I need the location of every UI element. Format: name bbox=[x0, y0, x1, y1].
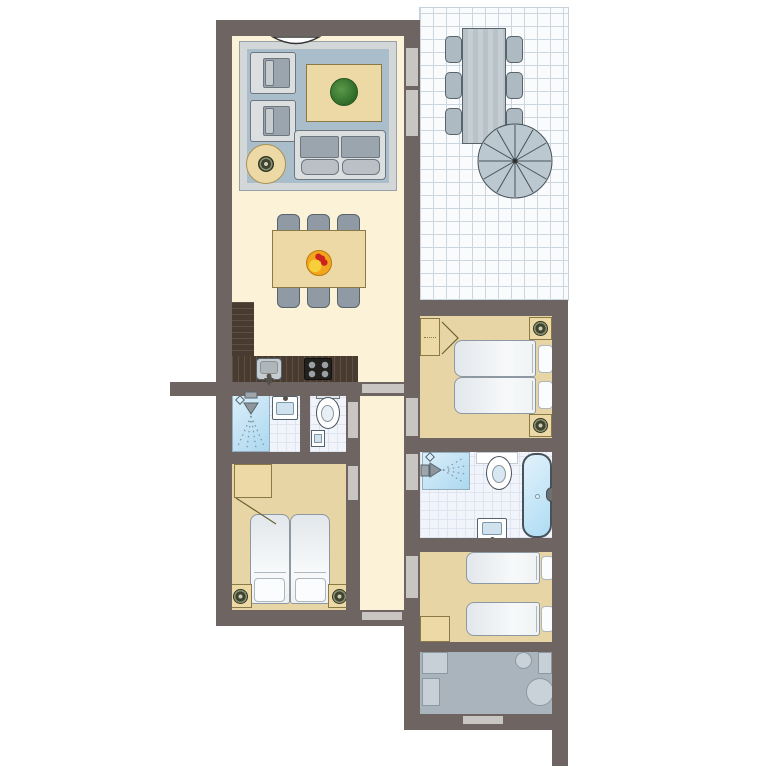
wall bbox=[420, 300, 568, 316]
bedroom-2-door-opening bbox=[348, 466, 358, 500]
wall bbox=[420, 438, 552, 452]
pillow bbox=[295, 578, 326, 602]
wall-stub bbox=[170, 382, 216, 396]
armchair bbox=[250, 100, 296, 142]
bedside-lamp bbox=[233, 589, 248, 604]
terrace-door-opening bbox=[406, 48, 418, 86]
bath-shower bbox=[422, 452, 470, 490]
bathroom-door-opening bbox=[406, 454, 418, 490]
bed-mattress bbox=[466, 602, 540, 636]
bedside-lamp bbox=[533, 418, 548, 433]
wardrobe bbox=[234, 464, 272, 498]
bedroom-1-door-opening bbox=[406, 398, 418, 436]
bedside-lamp bbox=[332, 589, 347, 604]
utility-appliance bbox=[422, 678, 440, 706]
wall bbox=[420, 642, 552, 652]
plant bbox=[330, 78, 358, 106]
toilet bbox=[316, 397, 340, 429]
terrace-door-opening bbox=[406, 90, 418, 136]
floor-plan bbox=[0, 0, 768, 768]
outdoor-chair bbox=[445, 72, 462, 99]
utility-door-opening bbox=[463, 716, 503, 724]
outdoor-chair bbox=[445, 36, 462, 63]
toilet-door-opening bbox=[348, 402, 358, 438]
washing-machine-drum bbox=[515, 652, 532, 669]
outdoor-chair bbox=[506, 36, 523, 63]
wall bbox=[232, 452, 346, 464]
wall bbox=[420, 538, 552, 552]
fruit-bowl bbox=[306, 250, 332, 276]
bed-mattress bbox=[466, 552, 540, 584]
sofa bbox=[294, 130, 386, 180]
washbasin bbox=[272, 396, 298, 420]
pillow bbox=[538, 381, 553, 409]
outdoor-chair bbox=[506, 72, 523, 99]
kitchen-sink bbox=[256, 358, 282, 380]
toilet bbox=[486, 456, 512, 490]
pillow bbox=[254, 578, 285, 602]
wall-stub bbox=[552, 730, 568, 766]
shower-cabin bbox=[232, 392, 270, 452]
wardrobe bbox=[420, 318, 440, 356]
bedroom-3-door-opening bbox=[406, 556, 418, 598]
hallway-south-door-opening bbox=[362, 612, 402, 620]
table-lamp bbox=[258, 156, 274, 172]
utility-appliance bbox=[538, 652, 552, 674]
wall bbox=[300, 392, 310, 452]
wardrobe bbox=[420, 616, 450, 642]
bed-mattress bbox=[454, 340, 536, 377]
kitchen-counter bbox=[232, 356, 358, 382]
outdoor-chair bbox=[445, 108, 462, 135]
wall bbox=[216, 20, 232, 626]
outdoor-table bbox=[462, 28, 506, 144]
hand-basin bbox=[311, 430, 325, 447]
bedside-lamp bbox=[533, 321, 548, 336]
wall bbox=[216, 20, 420, 36]
outdoor-chair bbox=[506, 108, 523, 135]
hallway-door-opening bbox=[362, 384, 404, 393]
pillow bbox=[538, 345, 553, 373]
boiler bbox=[526, 678, 554, 706]
armchair bbox=[250, 52, 296, 94]
stove bbox=[304, 358, 332, 380]
wall bbox=[552, 300, 568, 730]
bed-mattress bbox=[454, 377, 536, 414]
utility-counter bbox=[422, 652, 448, 674]
